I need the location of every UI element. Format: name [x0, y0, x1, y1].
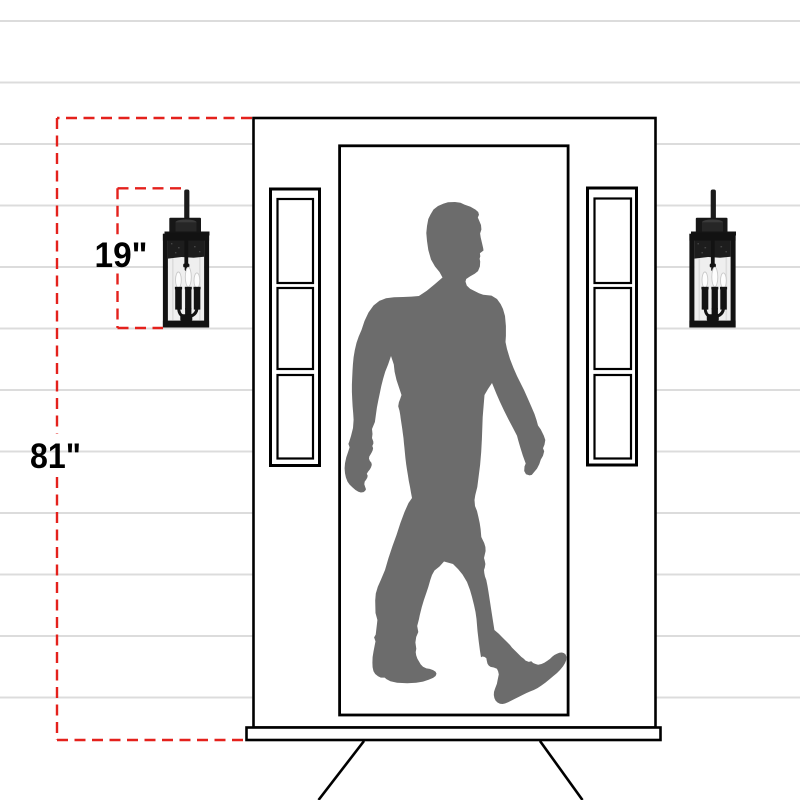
svg-text:81": 81": [30, 437, 81, 476]
svg-text:19": 19": [95, 236, 148, 275]
